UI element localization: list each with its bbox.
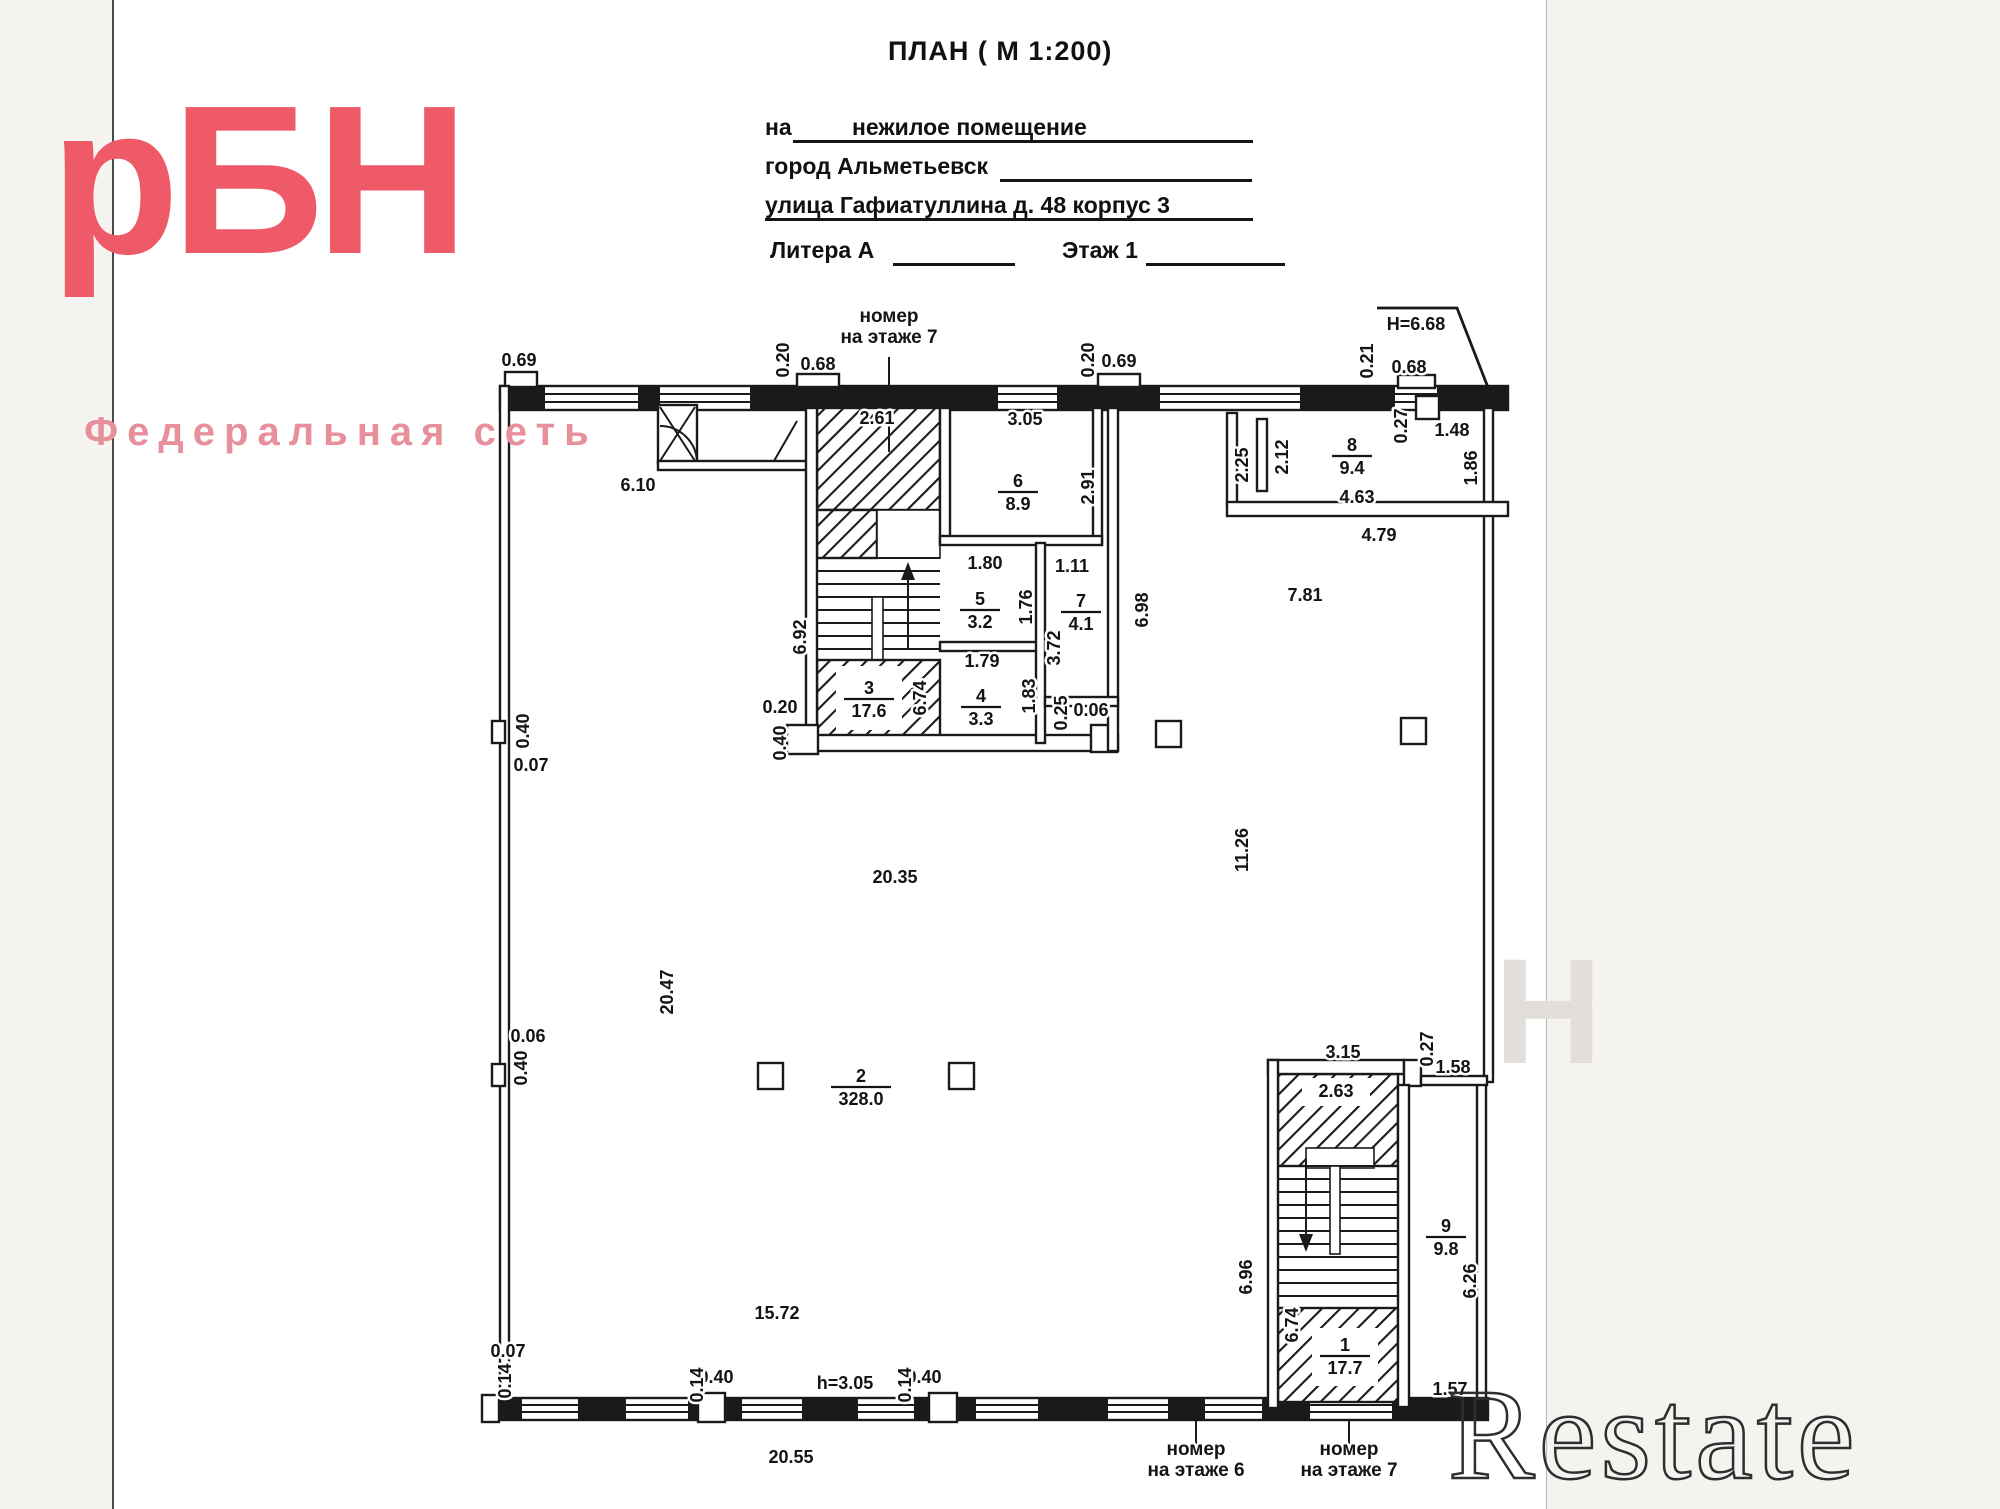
dim-label: 2.12 — [1272, 439, 1292, 474]
dim-label: 15.72 — [754, 1303, 799, 1323]
svg-text:номер: номер — [859, 306, 918, 327]
svg-text:8.9: 8.9 — [1005, 494, 1030, 514]
svg-text:1: 1 — [1340, 1335, 1350, 1355]
dim-label: 0.69 — [501, 350, 536, 370]
dim-label: 20.47 — [657, 969, 677, 1014]
underline — [1000, 179, 1252, 182]
dim-label: 1.86 — [1461, 450, 1481, 485]
room-label: 74.1 — [1061, 591, 1101, 634]
dim-label: 0.21 — [1357, 343, 1377, 378]
dim-label: 2.25 — [1232, 447, 1252, 482]
dim-label: 1.79 — [964, 651, 999, 671]
svg-text:6: 6 — [1013, 471, 1023, 491]
vestibule — [658, 405, 815, 470]
street-line: улица Гафиатуллина д. 48 корпус 3 — [765, 192, 1170, 219]
underline — [793, 140, 1253, 143]
svg-text:на этаже 7: на этаже 7 — [1300, 1460, 1397, 1481]
dim-label: 1.76 — [1016, 589, 1036, 624]
dim-label: 6.96 — [1236, 1259, 1256, 1294]
dim-label: 0.68 — [1391, 357, 1426, 377]
purpose-label: на — [765, 114, 792, 141]
city-line: город Альметьевск — [765, 153, 988, 180]
dim-label: 0.27 — [1391, 408, 1411, 443]
dim-label: 0.20 — [773, 342, 793, 377]
floor-label: Этаж 1 — [1062, 237, 1138, 264]
dim-label: 20.35 — [872, 867, 917, 887]
dim-label: 0.07 — [490, 1341, 525, 1361]
dim-label: 0.14 — [495, 1363, 515, 1398]
dim-label: 0.20 — [762, 697, 797, 717]
room-label: 2328.0 — [831, 1066, 891, 1109]
dim-label: 1.80 — [967, 553, 1002, 573]
dim-label: 0.14 — [687, 1367, 707, 1402]
dim-label: 6.74 — [1282, 1307, 1302, 1342]
dim-label: 1.11 — [1055, 556, 1089, 576]
room-label: 89.4 — [1332, 435, 1372, 478]
dim-label: h=3.05 — [817, 1373, 874, 1393]
svg-text:номер: номер — [1166, 1439, 1225, 1460]
dim-label: 4.63 — [1339, 487, 1374, 507]
svg-text:3: 3 — [864, 678, 874, 698]
dim-label: Н=6.68 — [1387, 314, 1446, 334]
dim-label: 2.63 — [1318, 1081, 1353, 1101]
svg-text:17.7: 17.7 — [1327, 1358, 1362, 1378]
dim-label: 11.26 — [1232, 828, 1252, 872]
dim-label: 0.68 — [800, 354, 835, 374]
dim-label: 0.40 — [770, 725, 790, 760]
dim-label: 2.61 — [859, 408, 894, 428]
dim-label: 20.55 — [768, 1447, 813, 1467]
litera-label: Литера А — [770, 237, 874, 264]
purpose-value: нежилое помещение — [852, 114, 1087, 141]
dim-label: 6.26 — [1460, 1263, 1480, 1298]
room-label: 68.9 — [998, 471, 1038, 514]
svg-text:4: 4 — [976, 686, 986, 706]
svg-text:2: 2 — [856, 1066, 866, 1086]
dim-label: 0.27 — [1417, 1031, 1437, 1066]
dim-label: 3.15 — [1325, 1042, 1360, 1062]
svg-text:9.8: 9.8 — [1433, 1239, 1458, 1259]
underline — [765, 218, 1253, 221]
dim-label: 1.83 — [1019, 678, 1039, 713]
dim-label: 3.72 — [1044, 630, 1064, 665]
underline — [893, 263, 1015, 266]
floor-note: номерна этаже 7 — [840, 306, 937, 348]
dim-label: 6.98 — [1132, 592, 1152, 627]
room-label: 99.8 — [1426, 1216, 1466, 1259]
dim-label: 0.14 — [895, 1367, 915, 1402]
dim-label: 7.81 — [1287, 585, 1322, 605]
agency-logo-subtitle: Федеральная сеть — [84, 410, 598, 455]
dim-label: 0.20 — [1078, 342, 1098, 377]
floor-note: номерна этаже 7 — [1300, 1439, 1397, 1481]
svg-text:3.2: 3.2 — [967, 612, 992, 632]
dim-label: 3.05 — [1007, 409, 1042, 429]
dim-label: 0.07 — [513, 755, 548, 775]
svg-text:4.1: 4.1 — [1068, 614, 1093, 634]
svg-text:на этаже 6: на этаже 6 — [1147, 1460, 1244, 1481]
room-label: 53.2 — [960, 589, 1000, 632]
svg-text:9.4: 9.4 — [1339, 458, 1364, 478]
dim-label: 4.79 — [1361, 525, 1396, 545]
underline — [1146, 263, 1285, 266]
restate-watermark: Restate — [1448, 1360, 1859, 1509]
dim-label: 0.40 — [511, 1050, 531, 1085]
door-leaf — [774, 421, 797, 461]
hall-columns — [758, 718, 1426, 1089]
svg-text:7: 7 — [1076, 591, 1086, 611]
agency-logo-text: рБН — [50, 61, 461, 298]
dim-label: 0.06 — [1073, 700, 1108, 720]
svg-text:3.3: 3.3 — [968, 709, 993, 729]
dim-label: 1.48 — [1434, 420, 1469, 440]
dim-label: 0.06 — [510, 1026, 545, 1046]
dim-label: 0.69 — [1101, 351, 1136, 371]
svg-text:328.0: 328.0 — [838, 1089, 883, 1109]
svg-text:17.6: 17.6 — [851, 701, 886, 721]
dim-label: 1.58 — [1435, 1057, 1470, 1077]
dim-label: 6.74 — [910, 680, 930, 715]
plan-labels: 0.690.200.680.200.690.210.68Н=6.681.480.… — [490, 306, 1480, 1481]
svg-text:8: 8 — [1347, 435, 1357, 455]
svg-text:номер: номер — [1319, 1439, 1378, 1460]
floor-note: номерна этаже 6 — [1147, 1439, 1244, 1481]
dim-label: 0.40 — [513, 713, 533, 748]
dim-label: 2.91 — [1078, 469, 1098, 504]
dim-label: 0.25 — [1051, 695, 1071, 730]
scanned-floor-plan-page: Н — [0, 0, 2000, 1509]
agency-logo: рБН — [50, 74, 461, 286]
dim-label: 6.92 — [790, 619, 810, 654]
svg-text:5: 5 — [975, 589, 985, 609]
room-label: 43.3 — [961, 686, 1001, 729]
dim-label: 6.10 — [620, 475, 655, 495]
plan-title: ПЛАН ( М 1:200) — [888, 36, 1112, 67]
svg-text:9: 9 — [1441, 1216, 1451, 1236]
svg-text:на этаже 7: на этаже 7 — [840, 327, 937, 348]
